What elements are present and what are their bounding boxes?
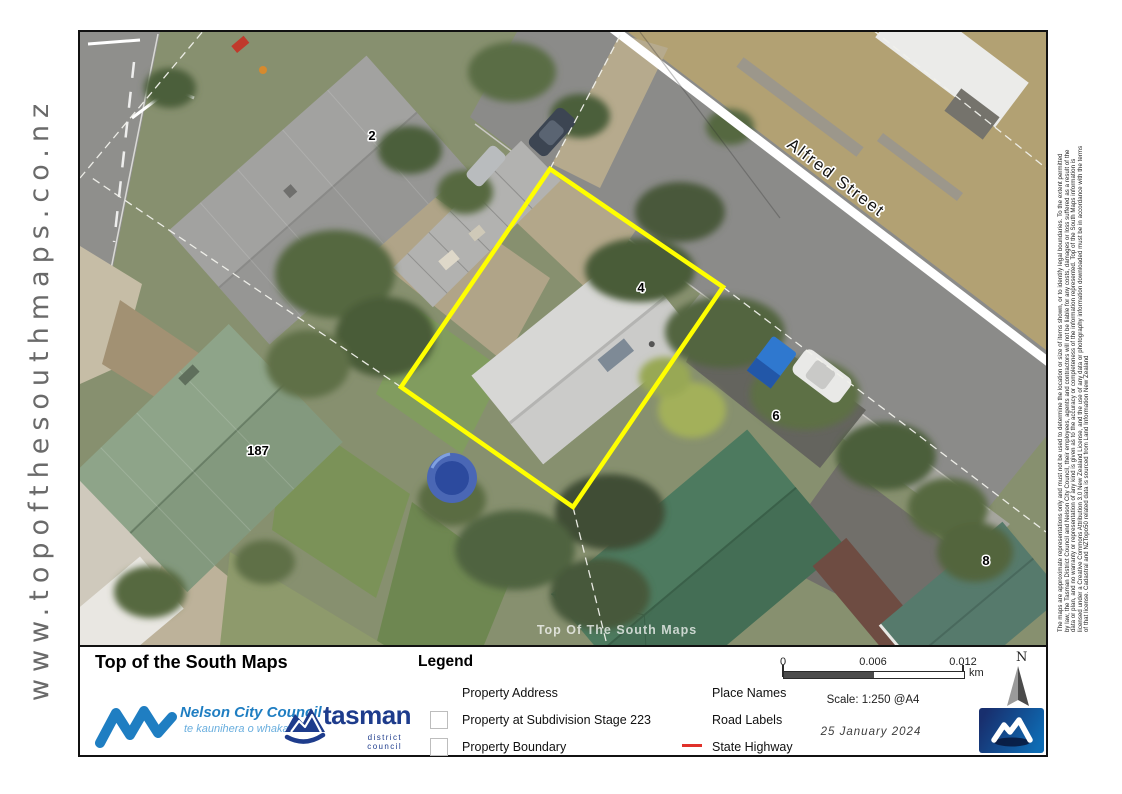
map-watermark: Top Of The South Maps — [537, 623, 697, 637]
tasman-district-council-logo-icon — [283, 702, 327, 748]
scale-tick-mid: 0.006 — [859, 656, 887, 668]
map-export-page: www.topofthesouthmaps.co.nz — [0, 0, 1122, 794]
top-of-the-south-maps-logo — [979, 708, 1044, 753]
aerial-map: 2 4 6 8 187 Alfred Street Top Of The Sou… — [80, 32, 1046, 645]
north-label: N — [1016, 650, 1027, 665]
disclaimer-line: licensed under a Creative Commons Attrib… — [1078, 32, 1085, 632]
scale-ratio-label: Scale: 1:250 @A4 — [827, 694, 920, 706]
disclaimer-line: data or plan, and no warranty or represe… — [1071, 32, 1078, 632]
disclaimer-text: The maps are approximate representations… — [1058, 32, 1091, 632]
parcel-label-187: 187 — [247, 443, 269, 458]
parcel-label-4: 4 — [637, 280, 645, 295]
legend-swatch-property-boundary — [430, 738, 448, 756]
legend-item-state-highway: State Highway — [712, 738, 793, 756]
mountain-logo-icon — [979, 708, 1044, 753]
legend-item-property-boundary: Property Boundary — [462, 738, 566, 756]
app-title: Top of the South Maps — [95, 652, 288, 673]
map-viewport: 2 4 6 8 187 Alfred Street Top Of The Sou… — [78, 30, 1048, 647]
scale-unit: km — [969, 667, 984, 679]
parcel-label-6: 6 — [772, 408, 779, 423]
legend-item-property-address: Property Address — [462, 684, 558, 702]
nelson-city-council-logo-icon — [95, 701, 177, 749]
tasman-name: tasman — [323, 700, 411, 731]
north-arrow-icon — [1002, 664, 1034, 710]
nelson-city-council-tagline: te kaunihera o whakatū — [184, 723, 298, 735]
disclaimer-line: The maps are approximate representations… — [1058, 32, 1065, 632]
legend-swatch-subdivision — [430, 711, 448, 729]
footer-panel: Top of the South Maps Nelson City Counci… — [78, 645, 1048, 757]
parcel-label-2: 2 — [368, 128, 375, 143]
disclaimer-line: of that license. Cadastral and NZTopo50 … — [1084, 32, 1091, 632]
parcel-label-8: 8 — [982, 553, 989, 568]
map-date: 25 January 2024 — [821, 726, 922, 738]
legend-item-place-names: Place Names — [712, 684, 786, 702]
legend-swatch-state-highway — [682, 744, 702, 747]
legend-item-road-labels: Road Labels — [712, 711, 782, 729]
scale-bar — [783, 671, 965, 679]
legend-title: Legend — [418, 653, 473, 671]
tasman-subtitle: district council — [330, 733, 402, 751]
disclaimer-line: by law, the Tasman District Council and … — [1065, 32, 1072, 632]
site-url-watermark: www.topofthesouthmaps.co.nz — [24, 38, 62, 760]
legend-item-subdivision: Property at Subdivision Stage 223 — [462, 711, 651, 729]
